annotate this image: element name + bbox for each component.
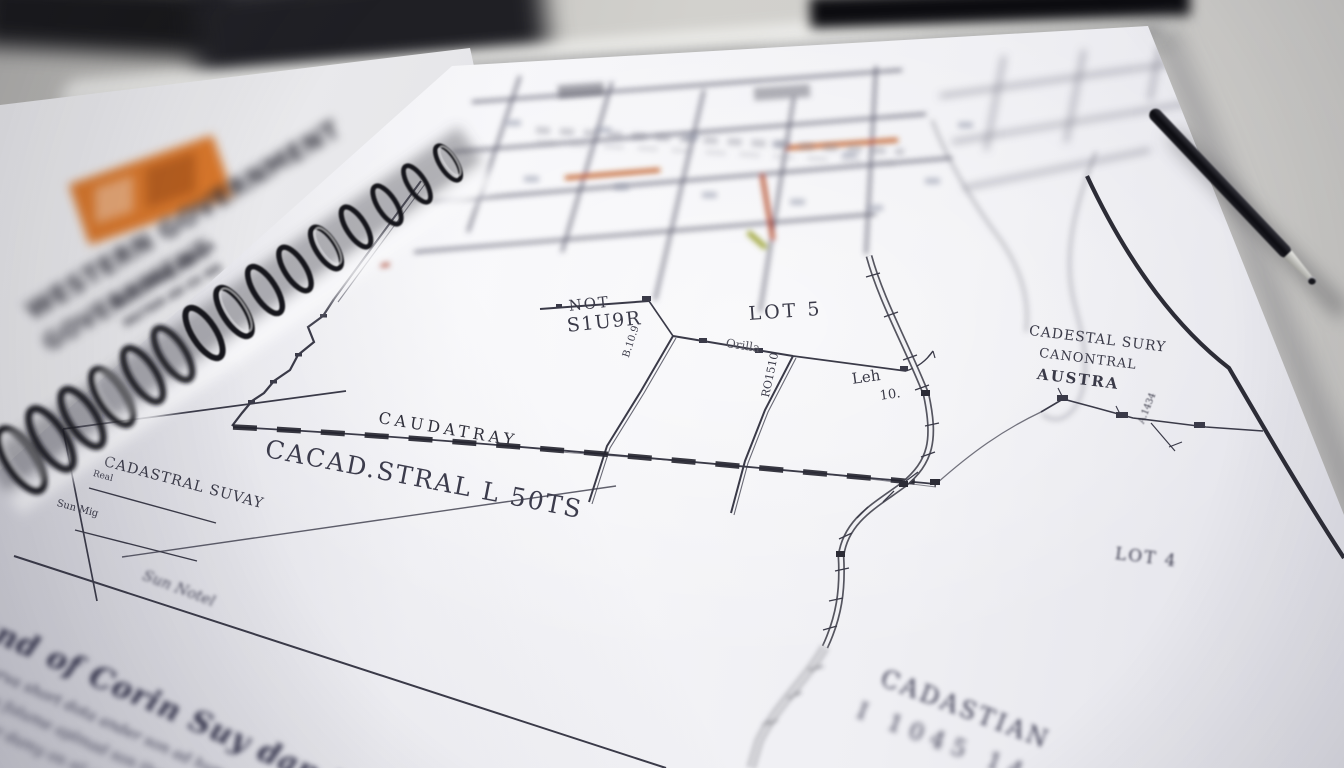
- far-parcel-numbers: [506, 120, 973, 211]
- road-double-line: [823, 256, 940, 647]
- label-ten: 10.: [879, 387, 901, 403]
- road-lower-blurred: [751, 647, 825, 768]
- photo-scene: WESTERN GOVERNMENT GOVERNMENT NOT THINK …: [0, 0, 1344, 768]
- label-leh: Leh: [851, 368, 881, 387]
- far-parcel-grid: [380, 66, 1096, 419]
- label-lot5: LOT 5: [748, 300, 823, 324]
